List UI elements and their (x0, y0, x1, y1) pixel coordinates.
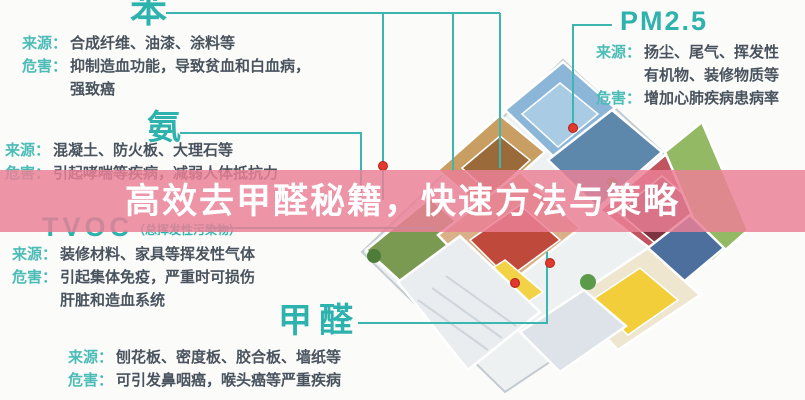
pollution-marker-dot (569, 124, 578, 133)
harm-text-line1: 引起集体免疫，严重时可损伤 (60, 266, 255, 289)
harm-row: 危害： 引起集体免疫，严重时可损伤 肝脏和造血系统 (12, 266, 255, 312)
harm-text-line1: 可引发鼻咽癌，喉头癌等严重疾病 (116, 369, 341, 392)
source-text-line1: 扬尘、尾气、挥发性 (644, 41, 779, 64)
harm-row: 危害： 增加心肺疾病患病率 (596, 87, 779, 110)
pollution-marker-dot (546, 259, 555, 268)
harm-row: 危害： 可引发鼻咽癌，喉头癌等严重疾病 (68, 369, 341, 392)
pollutant-section-tvoc: 来源： 装修材料、家具等挥发性气体 危害： 引起集体免疫，严重时可损伤 肝脏和造… (12, 243, 255, 312)
pollutant-name-benzene: 苯 (130, 0, 167, 28)
title-banner: 高效去甲醛秘籍，快速方法与策略 (0, 170, 805, 232)
harm-label: 危害： (68, 369, 113, 392)
source-row: 来源： 刨花板、密度板、胶合板、墙纸等 (68, 346, 341, 369)
harm-label: 危害： (596, 87, 641, 110)
source-text: 混凝土、防火板、大理石等 (53, 139, 233, 162)
harm-text-line2: 肝脏和造血系统 (60, 289, 255, 312)
pollutant-section-pm25: 来源： 扬尘、尾气、挥发性 有机物、装修物质等 危害： 增加心肺疾病患病率 (596, 41, 779, 110)
harm-text: 引起集体免疫，严重时可损伤 肝脏和造血系统 (60, 266, 255, 312)
harm-text-line1: 增加心肺疾病患病率 (644, 87, 779, 110)
harm-text-line2: 强致癌 (70, 78, 310, 101)
source-text: 扬尘、尾气、挥发性 有机物、装修物质等 (644, 41, 779, 87)
source-row: 来源： 合成纤维、油漆、涂料等 (22, 32, 310, 55)
source-row: 来源： 装修材料、家具等挥发性气体 (12, 243, 255, 266)
source-text: 合成纤维、油漆、涂料等 (70, 32, 235, 55)
source-label: 来源： (22, 32, 67, 55)
harm-label: 危害： (22, 55, 67, 101)
pollutant-name-formaldehyde: 甲醛 (278, 304, 360, 338)
harm-row: 危害： 抑制造血功能，导致贫血和白血病， 强致癌 (22, 55, 310, 101)
source-label: 来源： (68, 346, 113, 369)
page-title: 高效去甲醛秘籍，快速方法与策略 (125, 184, 680, 219)
source-row: 来源： 扬尘、尾气、挥发性 有机物、装修物质等 (596, 41, 779, 87)
pollutant-section-formaldehyde: 来源： 刨花板、密度板、胶合板、墙纸等 危害： 可引发鼻咽癌，喉头癌等严重疾病 (68, 346, 341, 392)
harm-text: 抑制造血功能，导致贫血和白血病， 强致癌 (70, 55, 310, 101)
source-label: 来源： (12, 243, 57, 266)
source-row: 来源： 混凝土、防火板、大理石等 (5, 139, 278, 162)
pollutant-name-pm25: PM2.5 (620, 8, 708, 35)
source-text: 装修材料、家具等挥发性气体 (60, 243, 255, 266)
pollution-marker-dot (511, 279, 520, 288)
source-label: 来源： (596, 41, 641, 87)
source-label: 来源： (5, 139, 50, 162)
pollutant-section-benzene: 来源： 合成纤维、油漆、涂料等 危害： 抑制造血功能，导致贫血和白血病， 强致癌 (22, 32, 310, 101)
source-text: 刨花板、密度板、胶合板、墙纸等 (116, 346, 341, 369)
source-text-line2: 有机物、装修物质等 (644, 64, 779, 87)
harm-label: 危害： (12, 266, 57, 312)
connector-formaldehyde (358, 252, 547, 323)
infographic-canvas: 苯 来源： 合成纤维、油漆、涂料等 危害： 抑制造血功能，导致贫血和白血病， 强… (0, 0, 805, 400)
harm-text-line1: 抑制造血功能，导致贫血和白血病， (70, 55, 310, 78)
